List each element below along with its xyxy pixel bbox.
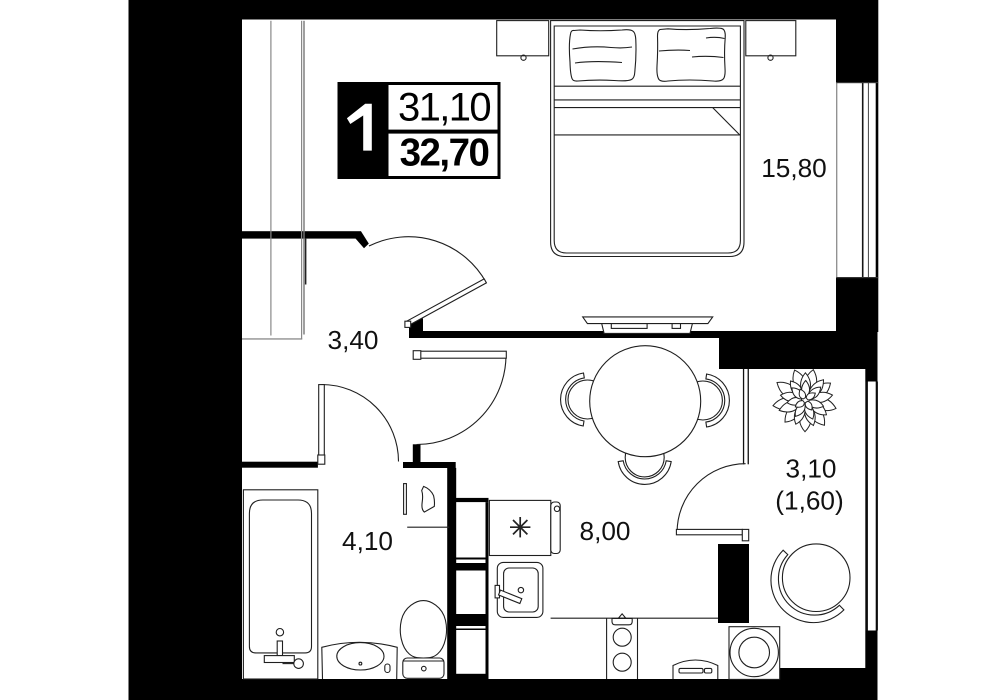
svg-text:(1,60): (1,60) xyxy=(775,486,843,516)
svg-text:15,80: 15,80 xyxy=(761,153,827,183)
svg-text:32,70: 32,70 xyxy=(400,131,489,174)
svg-text:3,40: 3,40 xyxy=(328,325,379,355)
svg-text:4,10: 4,10 xyxy=(342,526,393,556)
svg-text:8,00: 8,00 xyxy=(580,516,631,546)
svg-text:31,10: 31,10 xyxy=(398,86,490,130)
svg-text:3,10: 3,10 xyxy=(786,454,837,484)
